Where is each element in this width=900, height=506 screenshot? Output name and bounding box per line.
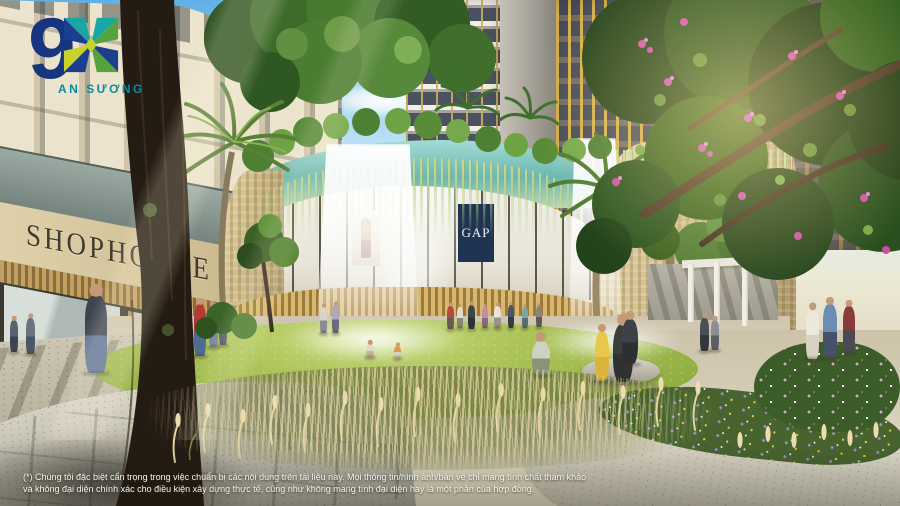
9x-pinwheel-logo-icon <box>62 16 120 74</box>
render-scene: SHOPHOUSE GAP <box>0 0 900 506</box>
disclaimer-line-2: và không đại diện chính xác cho điều kiệ… <box>23 484 885 496</box>
disclaimer-line-1: (*) Chúng tôi đặc biệt cẩn trọng trong v… <box>23 472 885 484</box>
logo-wordmark: AN SƯƠNG <box>58 82 164 96</box>
disclaimer: (*) Chúng tôi đặc biệt cẩn trọng trong v… <box>23 472 885 495</box>
project-logo: 9 AN SƯƠNG <box>28 8 164 96</box>
logo-row: 9 <box>28 8 164 90</box>
